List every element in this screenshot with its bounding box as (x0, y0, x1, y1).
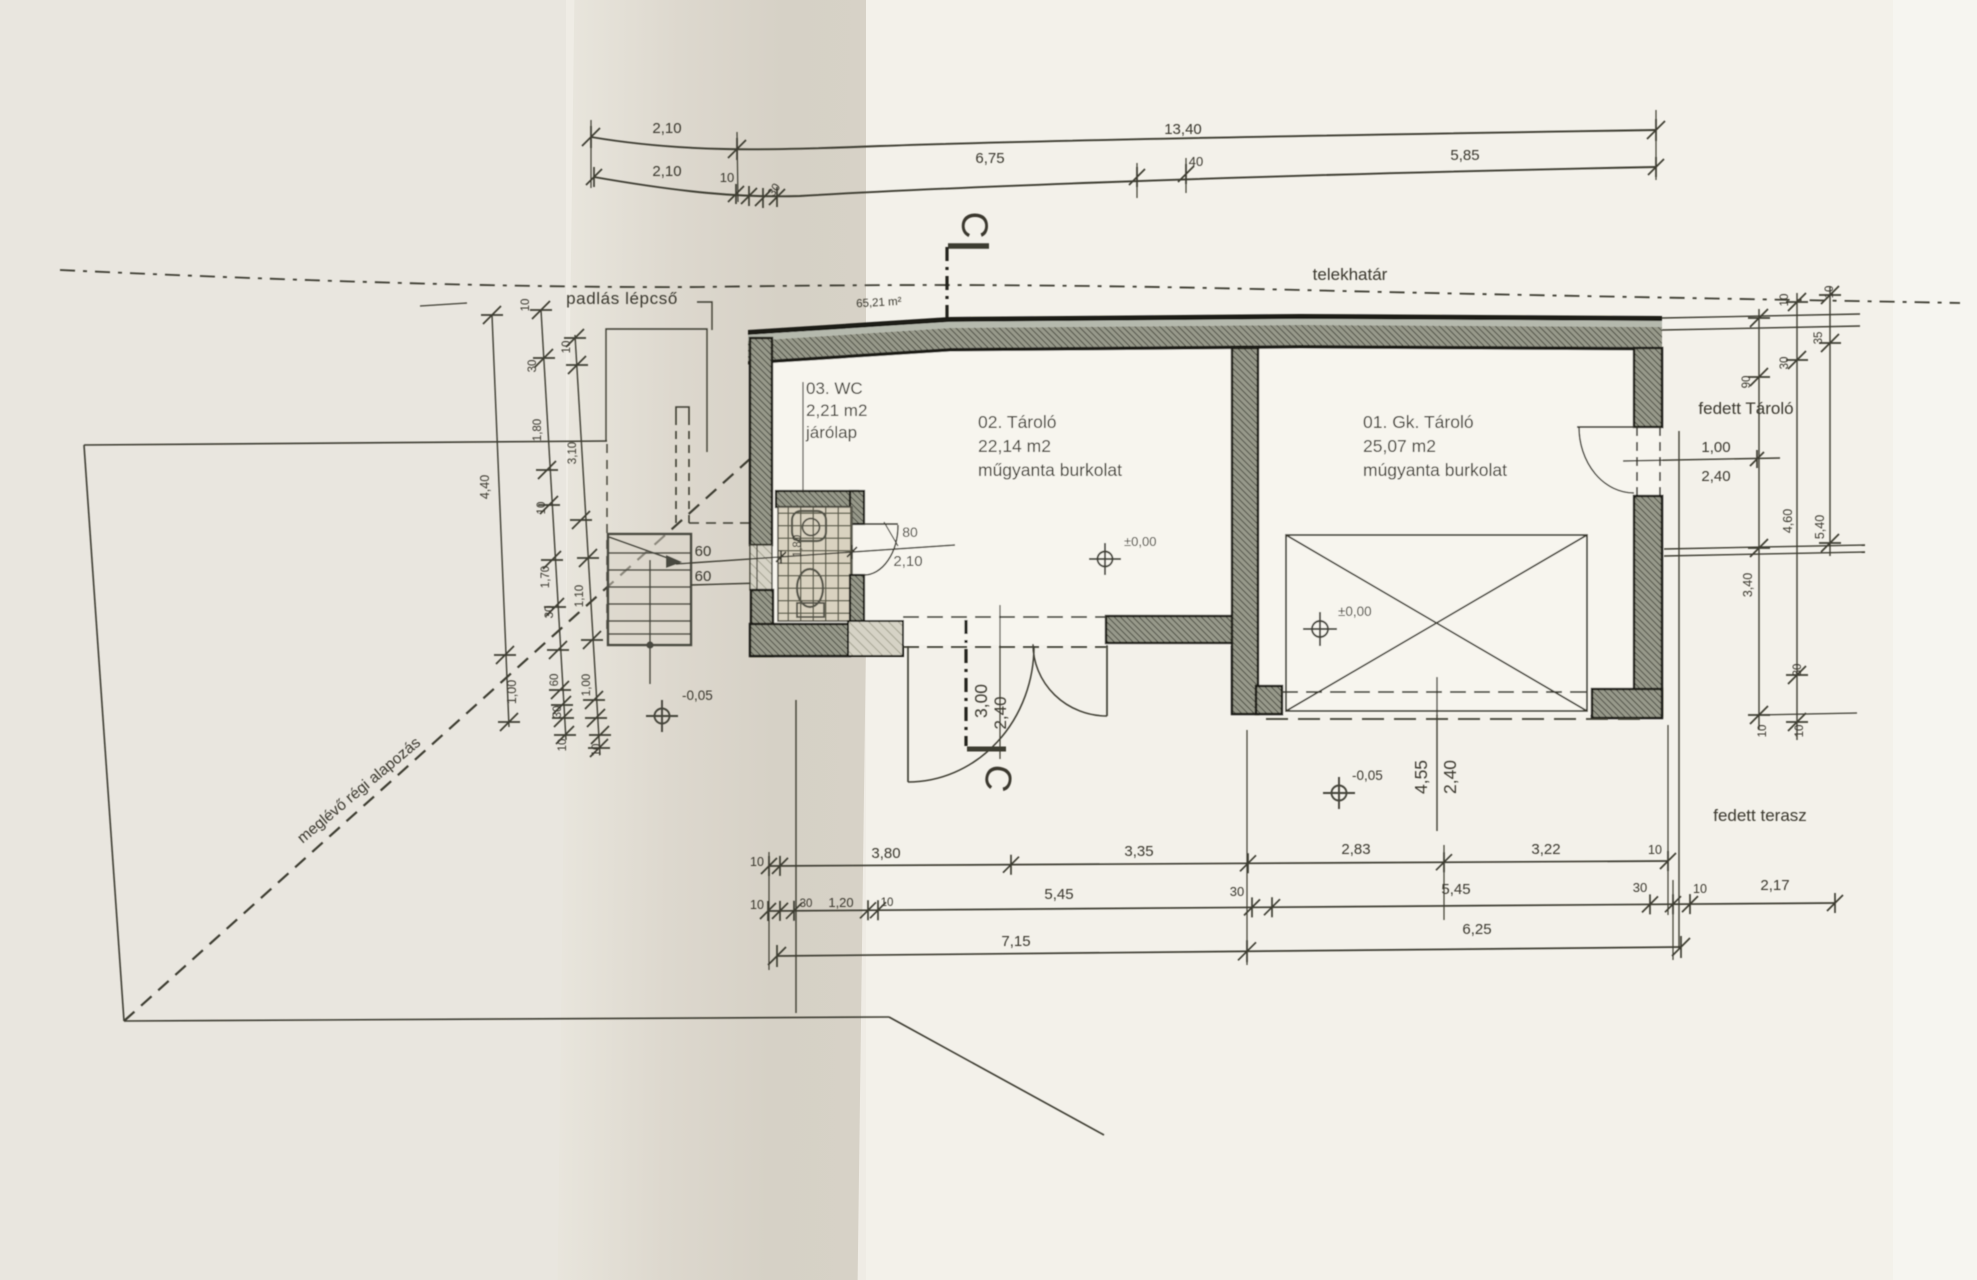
svg-text:±0,00: ±0,00 (1124, 534, 1156, 549)
svg-text:2,40: 2,40 (1701, 468, 1730, 485)
svg-text:01. Gk. Tároló: 01. Gk. Tároló (1363, 412, 1474, 432)
svg-text:telekhatár: telekhatár (1313, 265, 1388, 284)
svg-text:-0,05: -0,05 (682, 688, 713, 703)
svg-text:2,10: 2,10 (652, 120, 681, 137)
svg-text:10: 10 (520, 299, 532, 312)
svg-text:4,40: 4,40 (478, 475, 492, 499)
svg-text:3,40: 3,40 (1741, 573, 1755, 597)
svg-text:járólap: járólap (805, 423, 857, 442)
svg-text:3,22: 3,22 (1531, 841, 1560, 858)
svg-text:3,80: 3,80 (871, 845, 900, 862)
svg-text:02. Tároló: 02. Tároló (978, 412, 1056, 432)
svg-text:3,10: 3,10 (567, 442, 579, 464)
svg-text:10: 10 (750, 855, 764, 869)
svg-text:5,40: 5,40 (1813, 515, 1827, 539)
svg-text:±0,00: ±0,00 (1338, 604, 1372, 619)
svg-text:4,60: 4,60 (1781, 509, 1795, 533)
svg-text:10: 10 (591, 744, 603, 757)
svg-text:C: C (954, 212, 995, 239)
svg-text:30: 30 (1230, 884, 1244, 899)
svg-text:padlás lépcső: padlás lépcső (566, 289, 678, 308)
svg-text:30: 30 (1792, 664, 1804, 677)
svg-text:30: 30 (544, 606, 556, 619)
svg-text:60: 60 (549, 674, 561, 687)
svg-text:1,80: 1,80 (792, 535, 804, 557)
svg-text:10: 10 (1779, 294, 1791, 307)
svg-text:03. WC: 03. WC (806, 379, 863, 398)
svg-text:5,45: 5,45 (1044, 886, 1073, 903)
svg-text:35: 35 (1813, 332, 1825, 345)
svg-text:40: 40 (1189, 154, 1203, 169)
svg-text:4,55: 4,55 (1411, 760, 1431, 794)
svg-text:25,07 m2: 25,07 m2 (1363, 436, 1436, 456)
svg-text:3,35: 3,35 (1124, 843, 1153, 860)
svg-text:3,00: 3,00 (971, 684, 991, 718)
svg-text:2,17: 2,17 (1760, 877, 1789, 894)
svg-text:30: 30 (800, 898, 813, 910)
svg-text:5,85: 5,85 (1450, 147, 1479, 164)
svg-text:30: 30 (1779, 357, 1791, 370)
svg-text:80: 80 (902, 524, 918, 540)
svg-text:műgyanta burkolat: műgyanta burkolat (978, 460, 1122, 480)
svg-text:-0,05: -0,05 (1352, 768, 1383, 783)
svg-text:65,21 m²: 65,21 m² (856, 296, 902, 310)
svg-text:10: 10 (1757, 725, 1769, 738)
svg-text:1,80: 1,80 (532, 419, 544, 441)
svg-text:5,45: 5,45 (1441, 881, 1470, 898)
svg-text:1,00: 1,00 (581, 674, 593, 696)
svg-text:13,40: 13,40 (1164, 121, 1202, 138)
svg-text:1,00: 1,00 (505, 680, 519, 704)
svg-text:60: 60 (695, 543, 712, 560)
svg-text:10: 10 (1693, 882, 1707, 896)
svg-text:10: 10 (1824, 286, 1836, 299)
svg-text:60: 60 (695, 568, 712, 585)
svg-text:10: 10 (1794, 725, 1806, 738)
svg-text:10: 10 (1648, 843, 1662, 857)
svg-text:10: 10 (557, 739, 569, 752)
svg-text:90: 90 (1741, 376, 1753, 389)
svg-text:2,10: 2,10 (652, 163, 681, 180)
svg-text:2,40: 2,40 (1440, 760, 1460, 794)
svg-text:30: 30 (552, 706, 564, 719)
svg-text:30: 30 (527, 360, 539, 373)
svg-text:2,21 m2: 2,21 m2 (806, 401, 867, 420)
svg-text:7,15: 7,15 (1001, 933, 1030, 950)
svg-text:1,20: 1,20 (828, 895, 853, 910)
svg-text:10: 10 (720, 170, 734, 185)
svg-text:1,00: 1,00 (1701, 439, 1730, 456)
svg-text:2,83: 2,83 (1341, 841, 1370, 858)
svg-text:10: 10 (561, 341, 573, 354)
svg-text:fedett terasz: fedett terasz (1713, 806, 1807, 825)
svg-text:fedett Tároló: fedett Tároló (1698, 399, 1793, 418)
svg-text:10: 10 (536, 502, 548, 515)
svg-text:30: 30 (1633, 880, 1647, 895)
svg-text:1,10: 1,10 (574, 585, 586, 607)
svg-text:6,75: 6,75 (975, 150, 1004, 167)
svg-text:22,14 m2: 22,14 m2 (978, 436, 1051, 456)
svg-text:2,10: 2,10 (893, 553, 922, 570)
svg-text:10: 10 (881, 897, 894, 909)
svg-text:1,70: 1,70 (540, 566, 552, 588)
svg-text:2,40: 2,40 (991, 696, 1010, 729)
svg-text:múgyanta burkolat: múgyanta burkolat (1363, 460, 1507, 480)
svg-text:6,25: 6,25 (1462, 921, 1491, 938)
svg-text:10: 10 (750, 898, 764, 912)
